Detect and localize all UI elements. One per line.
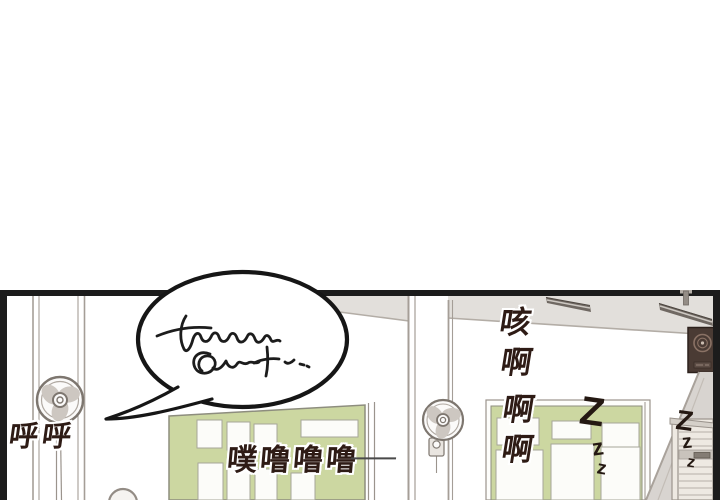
panel-border-right (713, 290, 720, 500)
person-head (109, 489, 137, 500)
sfx-slurp-dash: — (350, 442, 402, 472)
sfx-cough-4: 啊 (500, 434, 536, 465)
sfx-slurp: 噗噜噜噜— (226, 446, 394, 476)
wall-corner-lines (409, 296, 453, 500)
wall-speaker (688, 328, 717, 373)
sfx-breath: 呼呼 (7, 423, 77, 452)
sfx-sleep-right-2: z (681, 432, 693, 453)
panel-border-top (0, 290, 720, 296)
wall-fan-right (423, 400, 463, 473)
sfx-cough-3: 啊 (501, 394, 537, 425)
comic-page: 呼呼 咳 啊 啊 啊 噗噜噜噜— Z z z Z z z (0, 0, 720, 500)
panel-art (0, 0, 720, 500)
ceiling-right (448, 296, 714, 335)
panel-border-left (0, 290, 7, 500)
sfx-slurp-text: 噗噜噜噜 (226, 444, 361, 477)
sfx-cough-1: 咳 (498, 307, 534, 338)
sfx-cough-2: 啊 (499, 347, 535, 378)
